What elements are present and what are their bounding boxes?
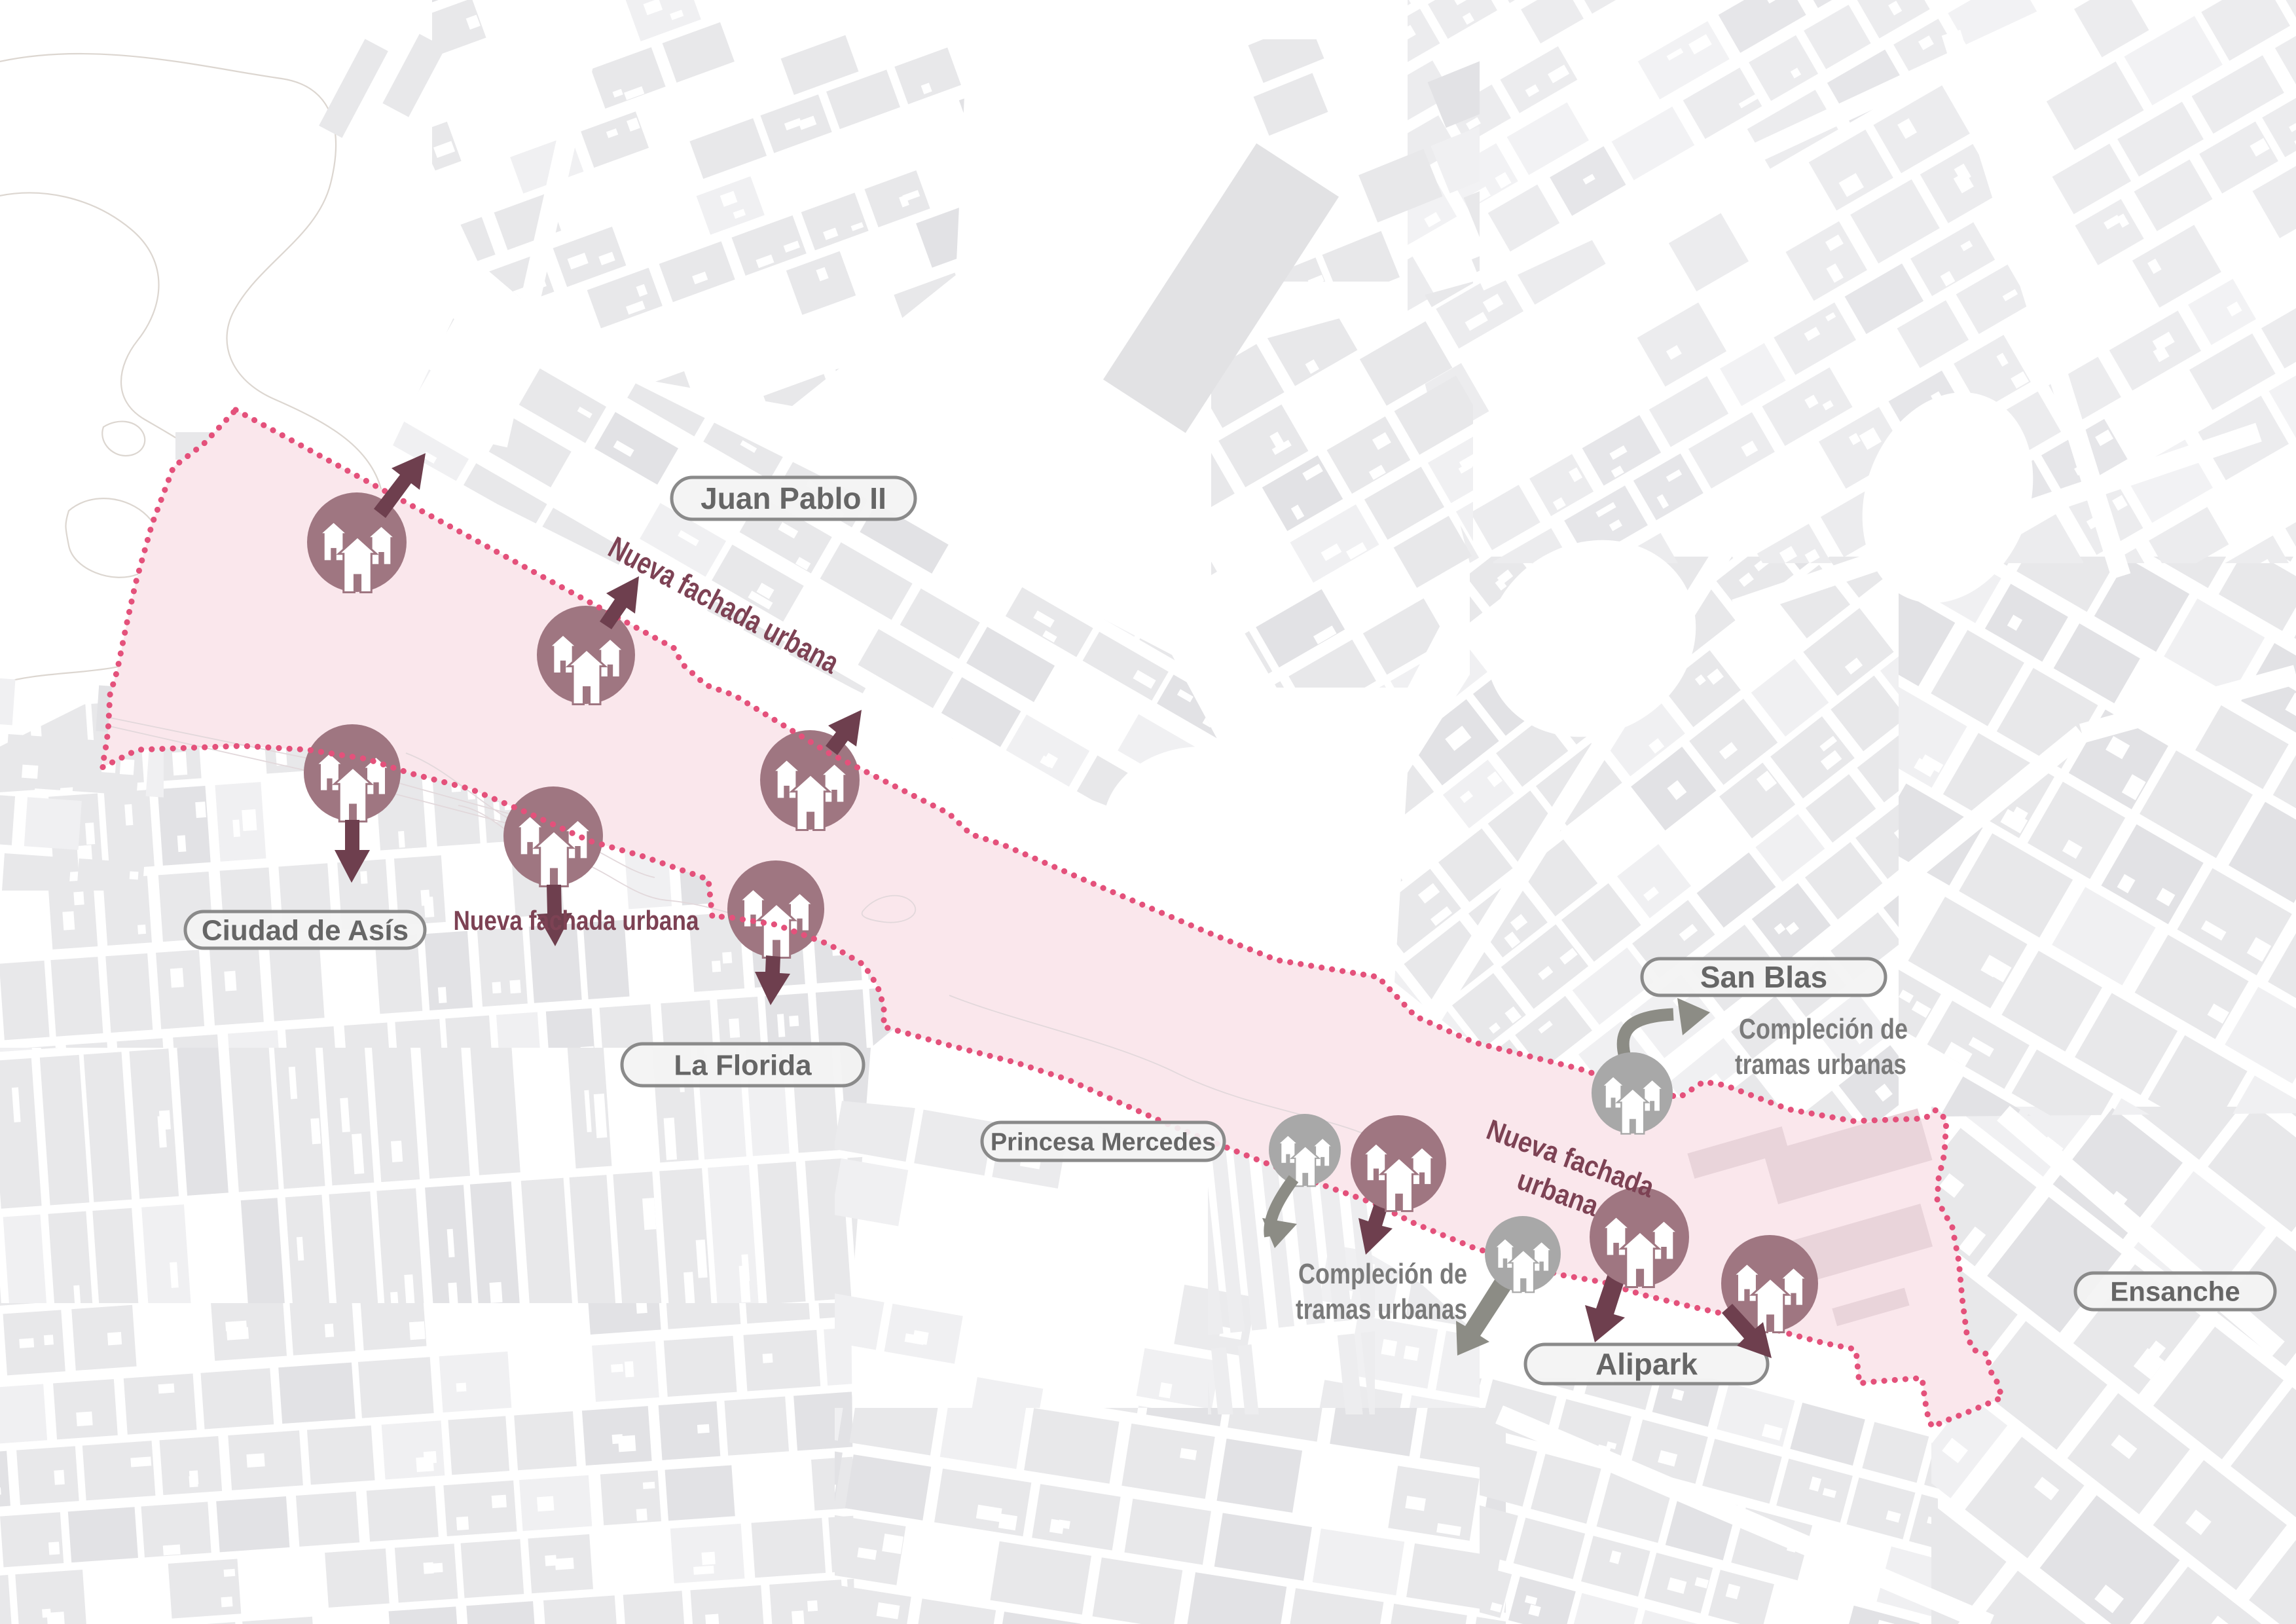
svg-text:Compleción de: Compleción de [1739, 1013, 1908, 1045]
svg-text:Nueva fachada urbana: Nueva fachada urbana [454, 905, 700, 936]
svg-text:Princesa Mercedes: Princesa Mercedes [991, 1128, 1216, 1156]
svg-text:tramas urbanas: tramas urbanas [1296, 1293, 1467, 1325]
svg-text:Juan Pablo II: Juan Pablo II [701, 481, 886, 515]
svg-text:Ensanche: Ensanche [2110, 1276, 2240, 1307]
svg-text:San Blas: San Blas [1700, 960, 1827, 994]
svg-text:La Florida: La Florida [674, 1049, 812, 1081]
svg-text:Compleción de: Compleción de [1298, 1258, 1467, 1290]
svg-text:Ciudad de Asís: Ciudad de Asís [202, 914, 409, 946]
svg-text:Alipark: Alipark [1595, 1347, 1698, 1381]
svg-text:tramas urbanas: tramas urbanas [1735, 1048, 1906, 1080]
